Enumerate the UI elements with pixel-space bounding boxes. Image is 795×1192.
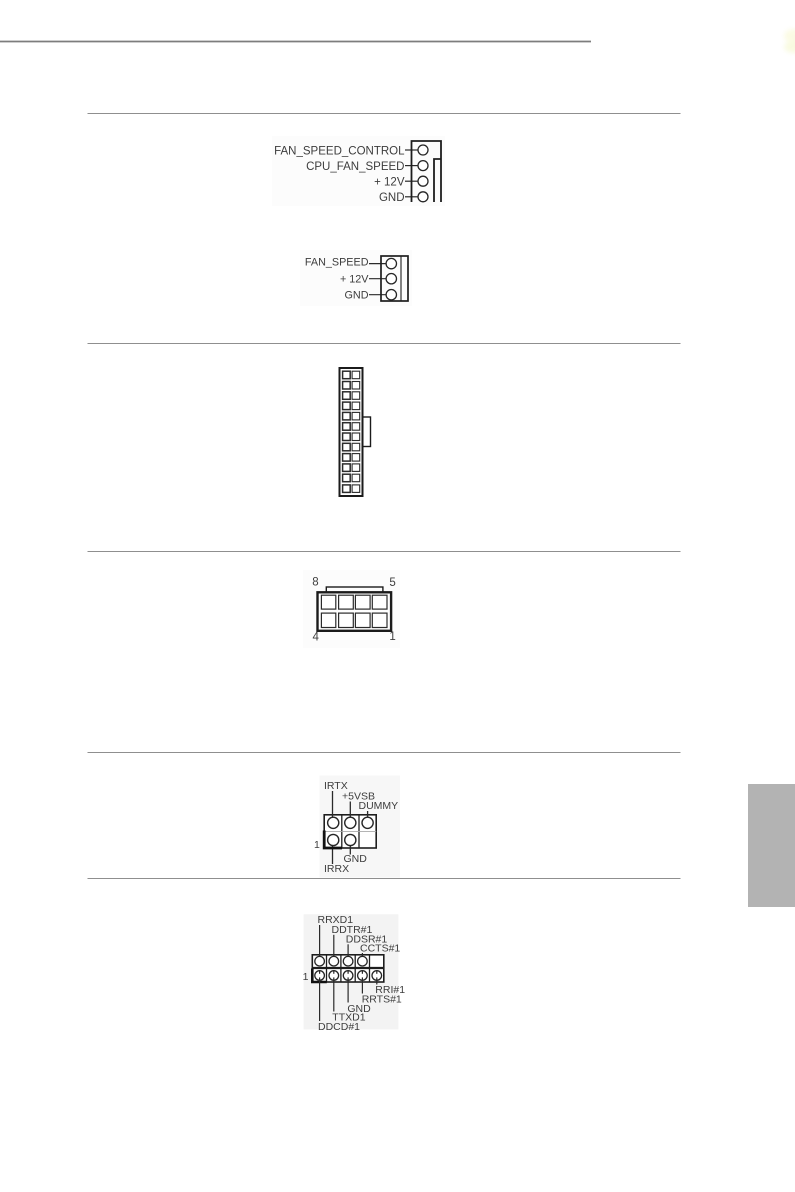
- svg-text:8: 8: [312, 577, 318, 589]
- svg-text:CPU_FAN_SPEED: CPU_FAN_SPEED: [306, 161, 404, 173]
- svg-text:DDCD#1: DDCD#1: [318, 1021, 360, 1033]
- svg-text:4: 4: [312, 632, 319, 644]
- svg-text:5: 5: [389, 577, 395, 589]
- svg-text:1: 1: [314, 839, 320, 851]
- svg-text:DUMMY: DUMMY: [359, 800, 399, 812]
- svg-text:1: 1: [303, 971, 309, 983]
- svg-text:FAN_SPEED_CONTROL: FAN_SPEED_CONTROL: [274, 145, 405, 157]
- svg-text:GND: GND: [379, 192, 405, 204]
- svg-text:1: 1: [389, 631, 395, 643]
- svg-text:CCTS#1: CCTS#1: [360, 943, 400, 955]
- svg-text:+ 12V: + 12V: [374, 177, 405, 189]
- svg-text:FAN_SPEED: FAN_SPEED: [305, 257, 369, 269]
- svg-text:+ 12V: + 12V: [340, 274, 369, 286]
- svg-text:GND: GND: [345, 290, 369, 302]
- svg-text:IRRX: IRRX: [324, 863, 349, 875]
